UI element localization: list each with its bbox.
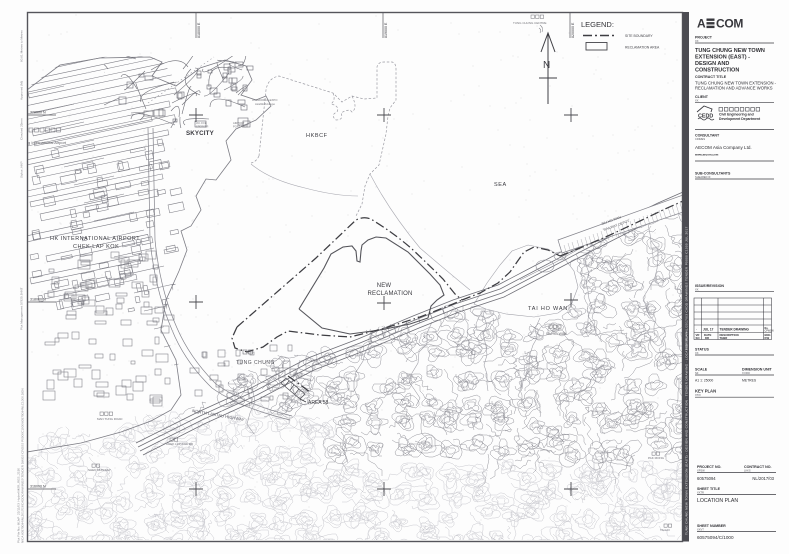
svg-text:60.61 Metres to Metres: 60.61 Metres to Metres [20, 30, 24, 62]
svg-text:N: N [543, 60, 550, 71]
svg-text:N\CA 60575094\NL201703\CADD\DR: N\CA 60575094\NL201703\CADD\DRAWINGS\TEN… [21, 388, 25, 543]
svg-text:KEY PLAN: KEY PLAN [695, 389, 716, 394]
svg-text:SPERSER: SPERSER [196, 125, 209, 129]
svg-text:TAI HO: TAI HO [660, 528, 670, 532]
svg-text:HK INTERNATIONAL AIRPORT: HK INTERNATIONAL AIRPORT [50, 236, 140, 242]
svg-text:TUNG CHUNG NEW TOWN EXTENSION: TUNG CHUNG NEW TOWN EXTENSION (EAST) - D… [684, 332, 688, 535]
svg-text:XXVT: XXVT [697, 527, 704, 531]
svg-text:RECLAMATION AREA: RECLAMATION AREA [625, 46, 660, 50]
svg-text:SHEARED IF: SHEARED IF [695, 175, 711, 179]
svg-text:NF: NF [695, 371, 699, 375]
svg-text:318000 N: 318000 N [30, 297, 46, 301]
svg-text:HKBCF: HKBCF [306, 133, 328, 139]
svg-text:TUNG CHUNG CENTRE: TUNG CHUNG CENTRE [513, 21, 547, 25]
svg-text:SEA: SEA [494, 182, 507, 188]
svg-text:A: A [697, 17, 706, 31]
svg-text:TENDER DRAWING: TENDER DRAWING [720, 328, 750, 332]
svg-text:CEDD: CEDD [698, 114, 713, 120]
svg-text:XX: XX [695, 39, 699, 43]
svg-text:RECLAMATION: RECLAMATION [367, 291, 412, 297]
svg-text:DESIGN AND: DESIGN AND [695, 61, 729, 67]
svg-text:316000 N: 316000 N [30, 484, 46, 488]
svg-text:XT/X: XT/X [695, 393, 701, 397]
svg-text:XXTR: XXTR [697, 490, 704, 494]
svg-text:CRIMES: CRIMES [695, 137, 705, 141]
svg-text:819000 E: 819000 E [384, 22, 388, 38]
svg-text:SHEK MUN KAP: SHEK MUN KAP [88, 468, 111, 472]
svg-text:CHEK LAP KOK: CHEK LAP KOK [73, 244, 119, 250]
svg-text:THBR: THBR [720, 336, 728, 340]
svg-text:818000 E: 818000 E [197, 22, 201, 38]
svg-text:Checked 25mm: Checked 25mm [20, 118, 24, 140]
svg-text:JUL 17: JUL 17 [703, 328, 714, 332]
svg-text:AIRPORT: AIRPORT [233, 121, 245, 125]
svg-text:SITE BOUNDARY: SITE BOUNDARY [625, 34, 653, 38]
svg-text:PAK MONG: PAK MONG [648, 456, 665, 460]
svg-text:EXTENSION (EAST) -: EXTENSION (EAST) - [695, 55, 750, 61]
svg-text:NEW: NEW [377, 283, 392, 289]
svg-text:TUNG CHUNG: TUNG CHUNG [236, 360, 275, 366]
svg-text:Development Department: Development Department [719, 117, 761, 121]
svg-text:AsiaWorld-Expo: AsiaWorld-Expo [255, 102, 275, 106]
svg-text:XX: XX [695, 287, 699, 291]
svg-text:DR: DR [705, 336, 709, 340]
svg-text:g International Airport: g International Airport [28, 140, 67, 145]
svg-text:COM: COM [716, 17, 743, 31]
svg-text:LOCATION PLAN: LOCATION PLAN [697, 498, 738, 504]
svg-text:Plot Management 57925 JHNT: Plot Management 57925 JHNT [20, 287, 24, 330]
svg-text:SKYCITY: SKYCITY [186, 130, 215, 137]
svg-text:XPSW: XPSW [697, 468, 705, 472]
svg-text:SIU HO WAN: SIU HO WAN [546, 332, 567, 336]
svg-text:NL/2017/03: NL/2017/03 [752, 476, 774, 481]
svg-text:320000 N: 320000 N [30, 110, 46, 114]
svg-text:www.aecom.com: www.aecom.com [694, 153, 719, 157]
svg-text:AREA 58: AREA 58 [308, 400, 329, 406]
svg-text:TUNG CHUNG NEW TOWN: TUNG CHUNG NEW TOWN [695, 48, 765, 54]
svg-text:-: - [696, 328, 697, 332]
svg-text:MAN TUNG ROAD: MAN TUNG ROAD [97, 417, 123, 421]
svg-text:XX: XX [695, 98, 699, 102]
svg-text:TAI HO WAN: TAI HO WAN [528, 306, 568, 312]
svg-text:JIU JI FE: JIU JI FE [196, 121, 207, 125]
svg-text:60575094/C/1000: 60575094/C/1000 [697, 535, 734, 540]
svg-text:LKKS: LKKS [744, 468, 751, 472]
svg-text:LEGEND:: LEGEND: [581, 20, 614, 29]
svg-text:CONTRACT TITLE: CONTRACT TITLE [695, 75, 727, 79]
svg-text:X FRO: X FRO [742, 371, 750, 375]
svg-text:PORT AREA: PORT AREA [233, 125, 248, 129]
svg-text:AECOM Asia Company Ltd.: AECOM Asia Company Ltd. [695, 145, 752, 150]
svg-text:RECLAMATION AND ADVANCE WORKS: RECLAMATION AND ADVANCE WORKS [695, 86, 773, 91]
svg-text:METRES: METRES [742, 379, 757, 383]
svg-text:60575094 NL/2017/03 CADD DRAWI: 60575094 NL/2017/03 CADD DRAWINGS TENDER… [684, 226, 688, 350]
svg-text:820000 E: 820000 E [571, 22, 575, 38]
svg-text:Stylus .HKP: Stylus .HKP [20, 161, 24, 178]
svg-text:Approved (M): Approved (M) [20, 81, 24, 100]
svg-text:XX: XX [695, 351, 699, 355]
svg-text:A1 1: 25000: A1 1: 25000 [695, 379, 713, 383]
svg-text:CHEK LAP KOK RD: CHEK LAP KOK RD [166, 442, 194, 446]
svg-text:CONSTRUCTION: CONSTRUCTION [695, 68, 739, 74]
svg-text:60575094: 60575094 [697, 476, 716, 481]
svg-text:ISSUE/REVISION: ISSUE/REVISION [695, 284, 724, 288]
svg-text:KW: KW [765, 336, 770, 340]
